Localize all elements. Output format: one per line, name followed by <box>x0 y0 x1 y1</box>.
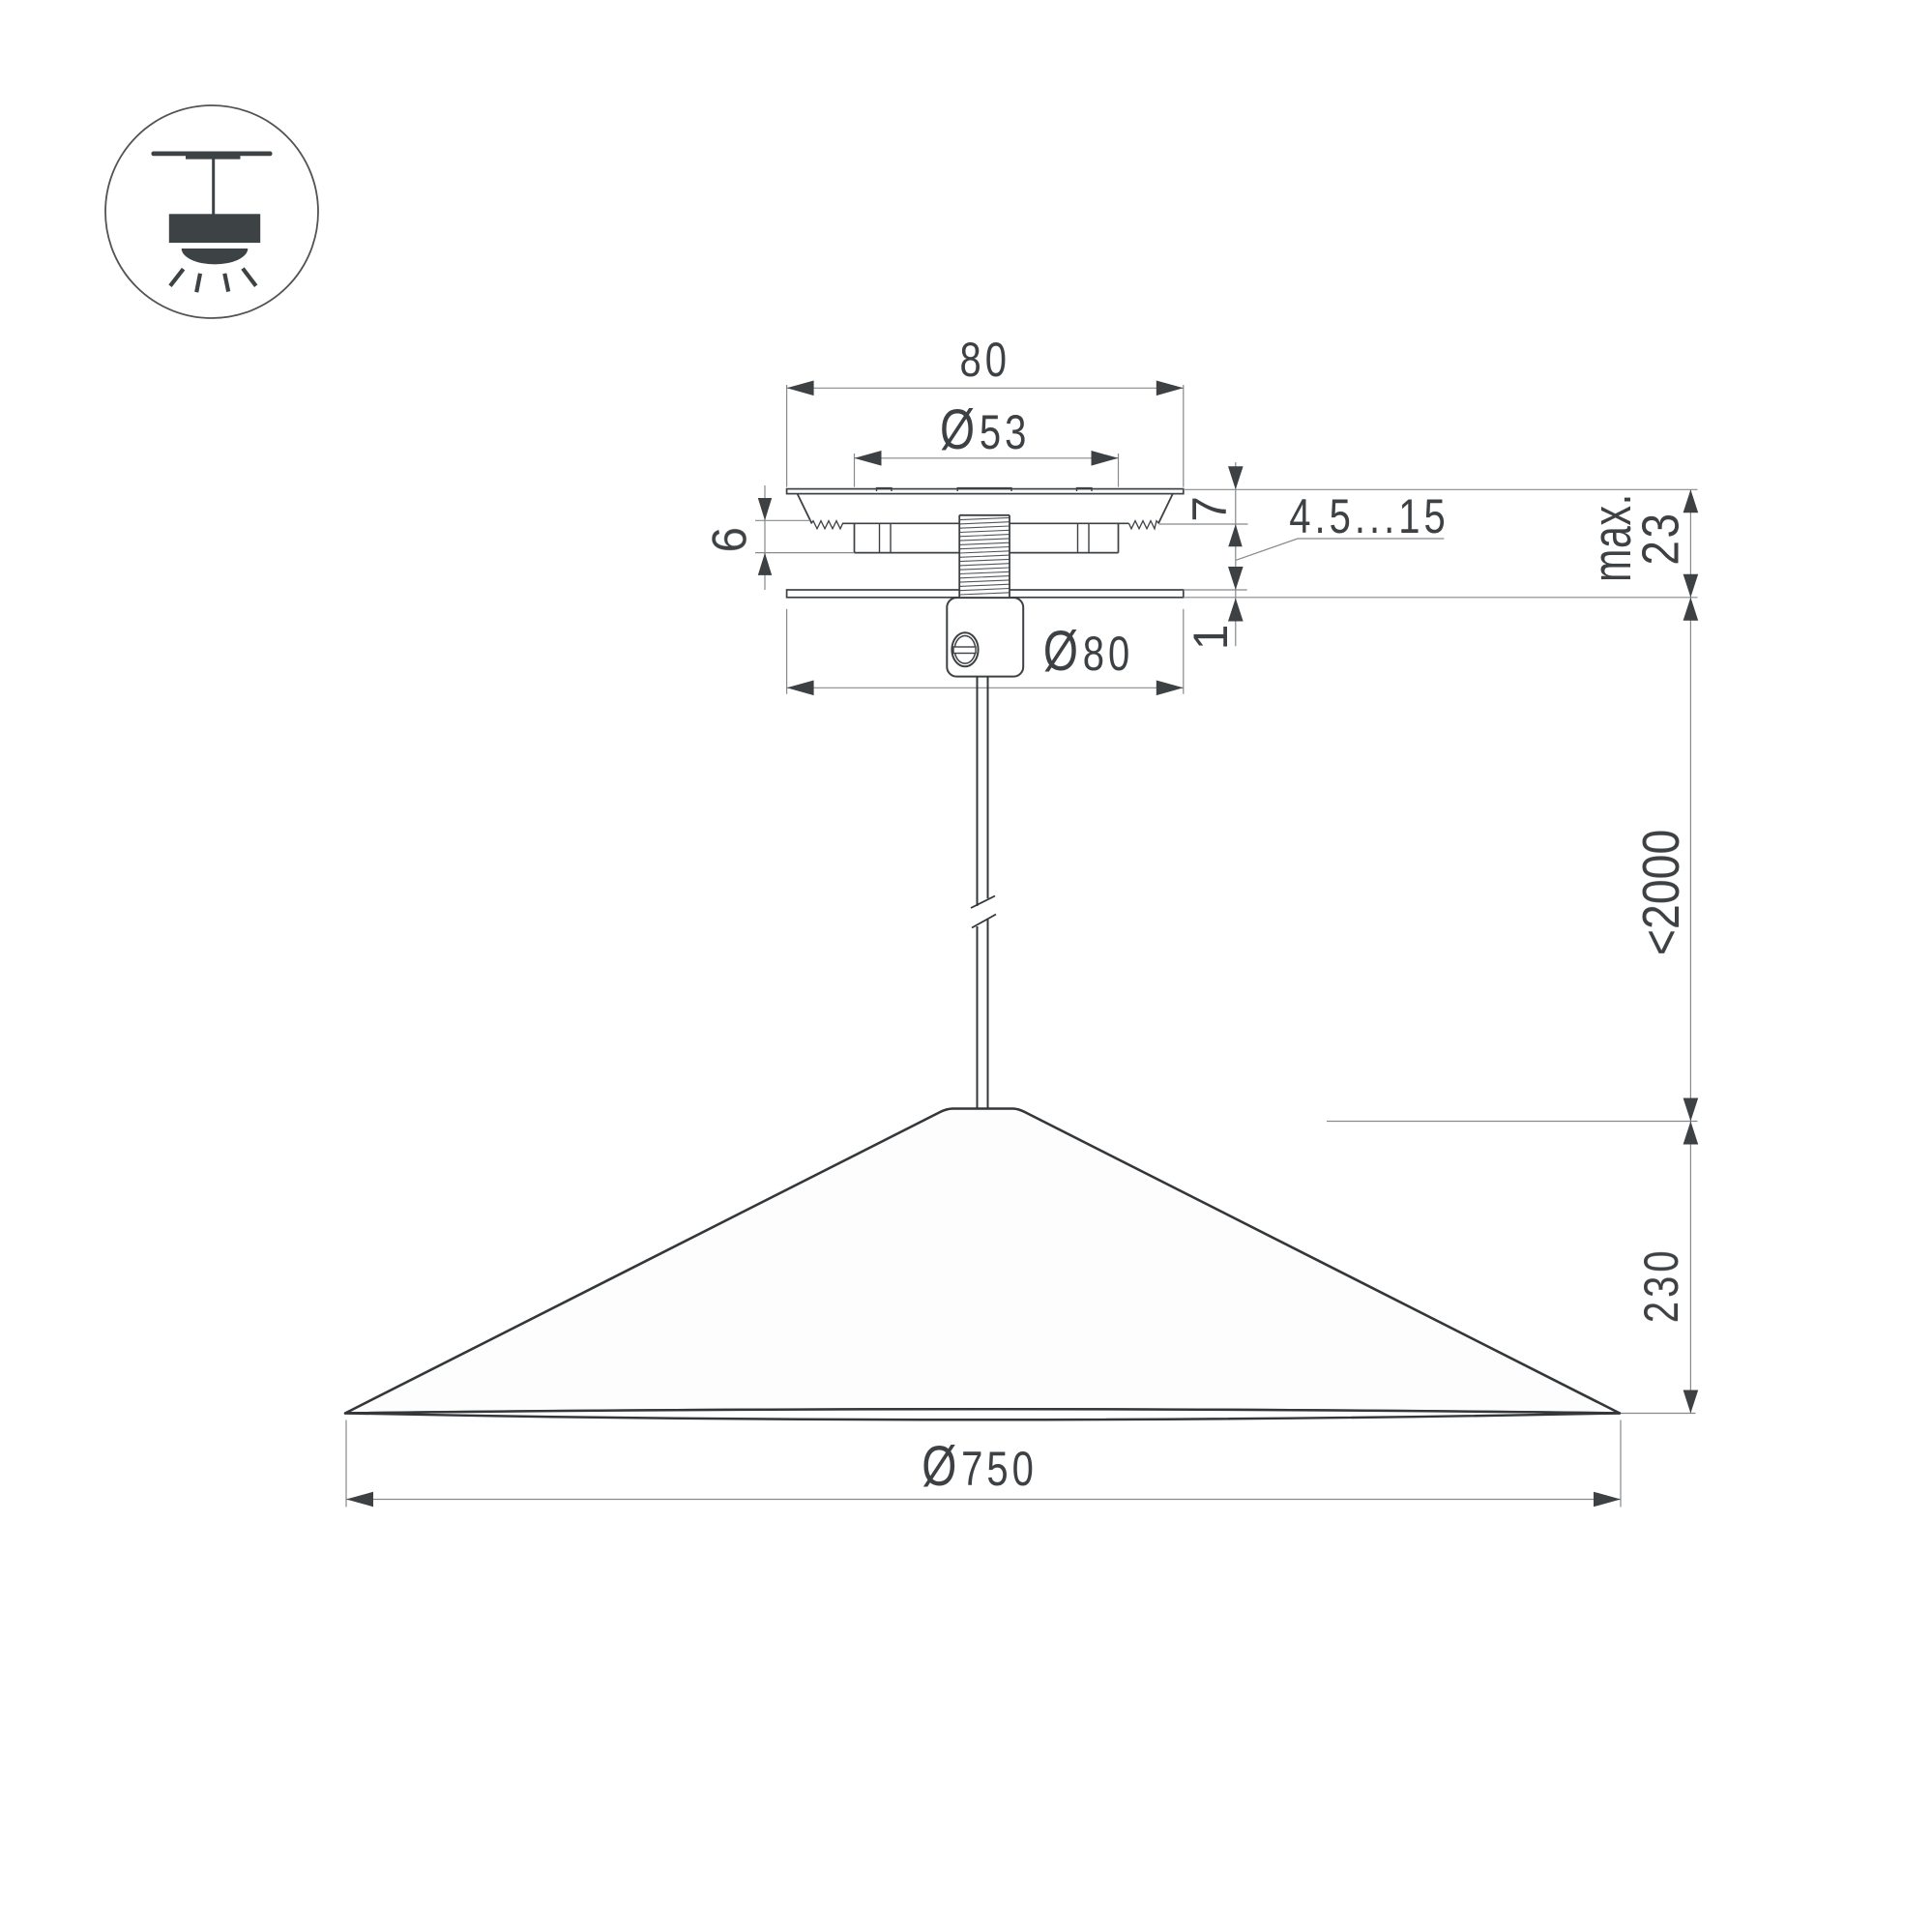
svg-text:Ø53: Ø53 <box>940 398 1030 461</box>
svg-text:1: 1 <box>1185 620 1238 650</box>
svg-text:7: 7 <box>1184 491 1237 521</box>
svg-text:6: 6 <box>703 522 756 552</box>
svg-text:230: 230 <box>1634 1246 1688 1323</box>
svg-text:Ø750: Ø750 <box>922 1435 1038 1498</box>
svg-text:4.5...15: 4.5...15 <box>1289 489 1449 543</box>
svg-text:23: 23 <box>1631 511 1689 565</box>
svg-text:80: 80 <box>959 333 1010 387</box>
svg-text:Ø80: Ø80 <box>1043 620 1133 683</box>
svg-text:<2000: <2000 <box>1631 830 1690 955</box>
